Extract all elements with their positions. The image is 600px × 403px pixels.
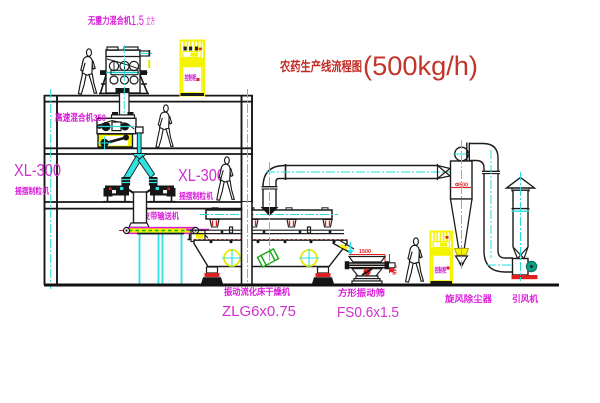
svg-text:摇摆制粒机: 摇摆制粒机 <box>179 191 213 201</box>
svg-text:立方: 立方 <box>146 15 155 26</box>
svg-text:ZLG6x0.75: ZLG6x0.75 <box>222 303 296 320</box>
svg-text:控制柜: 控制柜 <box>435 266 447 275</box>
svg-text:引风机: 引风机 <box>512 293 538 304</box>
svg-text:农药生产线流程图: 农药生产线流程图 <box>279 59 362 74</box>
svg-text:1500: 1500 <box>359 249 371 255</box>
svg-text:摇摆制粒机: 摇摆制粒机 <box>15 186 49 196</box>
svg-text:XL-300: XL-300 <box>14 160 61 180</box>
svg-text:无重力混合机: 无重力混合机 <box>87 15 131 27</box>
svg-text:皮带输送机: 皮带输送机 <box>142 211 179 221</box>
svg-text:1.5: 1.5 <box>131 13 144 28</box>
svg-text:XL-300: XL-300 <box>178 165 225 185</box>
svg-text:高速混合机350: 高速混合机350 <box>55 112 106 124</box>
svg-text:旋风除尘器: 旋风除尘器 <box>444 293 493 304</box>
svg-text:控制柜: 控制柜 <box>185 73 197 82</box>
svg-text:FS0.6x1.5: FS0.6x1.5 <box>337 304 399 321</box>
svg-text:方形振动筛: 方形振动筛 <box>338 287 385 298</box>
svg-text:(500kg/h): (500kg/h) <box>363 51 478 81</box>
svg-text:振动流化床干燥机: 振动流化床干燥机 <box>224 286 290 297</box>
